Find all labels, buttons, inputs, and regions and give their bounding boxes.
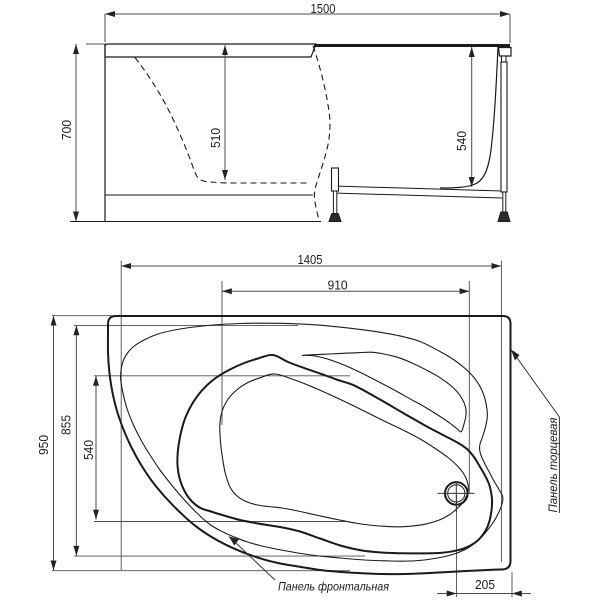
svg-text:1405: 1405 <box>298 252 323 267</box>
svg-text:540: 540 <box>81 440 96 460</box>
svg-text:1500: 1500 <box>311 1 336 16</box>
svg-text:Панель фронтальная: Панель фронтальная <box>278 580 390 594</box>
svg-text:950: 950 <box>36 435 51 455</box>
svg-text:Панель торцевая: Панель торцевая <box>546 417 560 513</box>
svg-text:855: 855 <box>59 415 74 435</box>
svg-text:700: 700 <box>59 120 74 140</box>
svg-text:540: 540 <box>454 131 469 151</box>
svg-text:510: 510 <box>208 128 223 148</box>
svg-text:910: 910 <box>328 277 348 292</box>
svg-text:205: 205 <box>475 577 495 592</box>
